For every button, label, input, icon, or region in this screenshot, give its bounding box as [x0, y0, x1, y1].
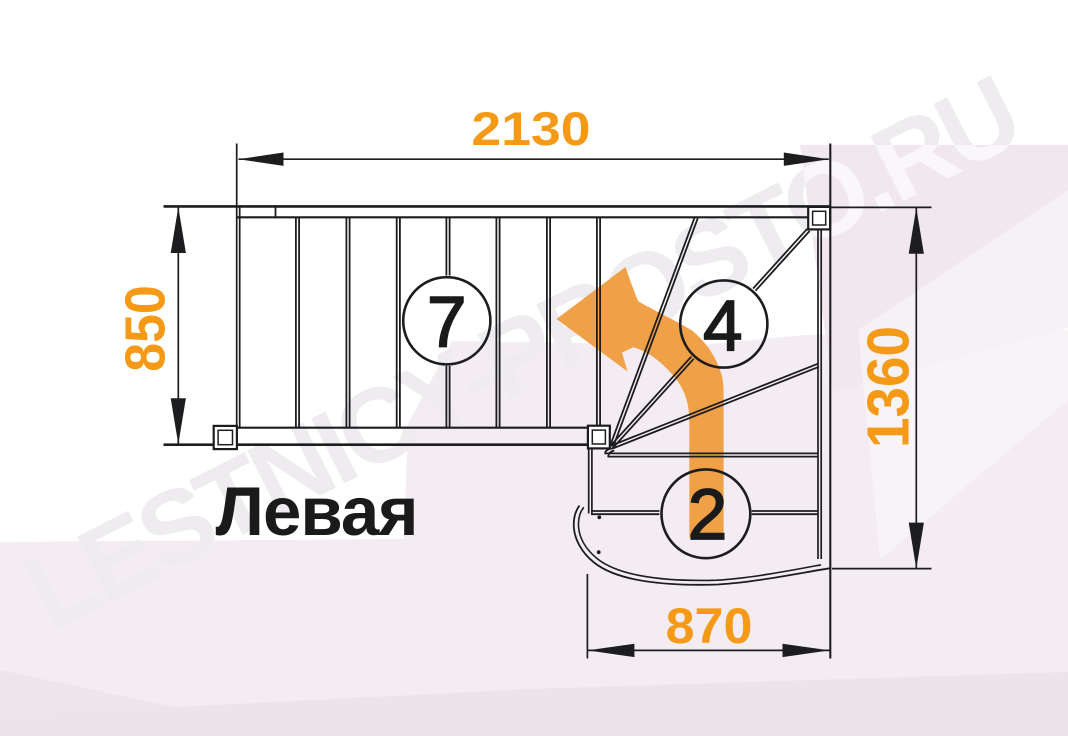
- svg-text:870: 870: [666, 597, 753, 653]
- svg-text:2: 2: [688, 476, 728, 555]
- svg-text:2130: 2130: [471, 102, 590, 155]
- svg-text:850: 850: [113, 285, 177, 372]
- svg-text:Левая: Левая: [216, 473, 418, 550]
- svg-text:7: 7: [427, 283, 467, 362]
- svg-text:4: 4: [703, 287, 743, 366]
- svg-text:1360: 1360: [856, 326, 922, 448]
